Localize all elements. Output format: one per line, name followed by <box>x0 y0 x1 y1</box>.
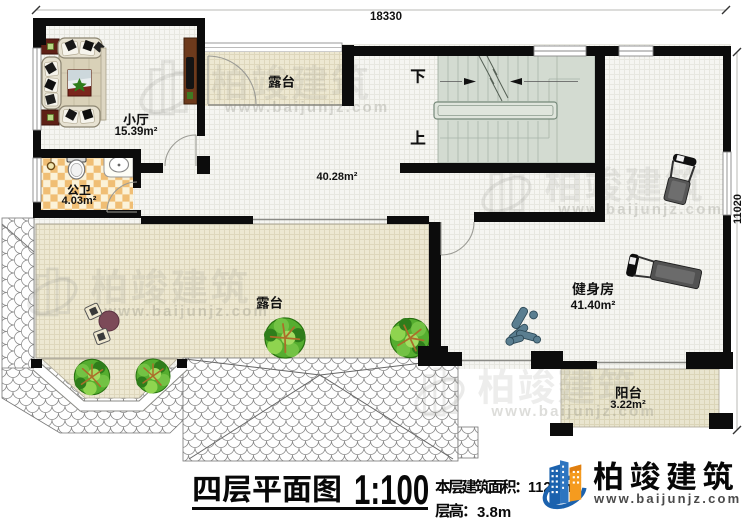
svg-text:1:100: 1:100 <box>354 466 429 514</box>
svg-text:www.baijunjz.com: www.baijunjz.com <box>224 99 390 116</box>
svg-text:4.03m²: 4.03m² <box>62 195 97 207</box>
svg-text:www.baijunjz.com: www.baijunjz.com <box>593 491 741 506</box>
svg-text:40.28m²: 40.28m² <box>317 171 358 183</box>
svg-text:3.8m: 3.8m <box>477 504 511 521</box>
svg-text:11020: 11020 <box>732 194 744 224</box>
svg-text:18330: 18330 <box>370 11 402 23</box>
svg-text:www.baijunjz.com: www.baijunjz.com <box>103 303 269 320</box>
svg-text:41.40m²: 41.40m² <box>571 298 616 312</box>
svg-text:15.39m²: 15.39m² <box>115 126 158 138</box>
svg-text:3.22m²: 3.22m² <box>610 399 646 411</box>
